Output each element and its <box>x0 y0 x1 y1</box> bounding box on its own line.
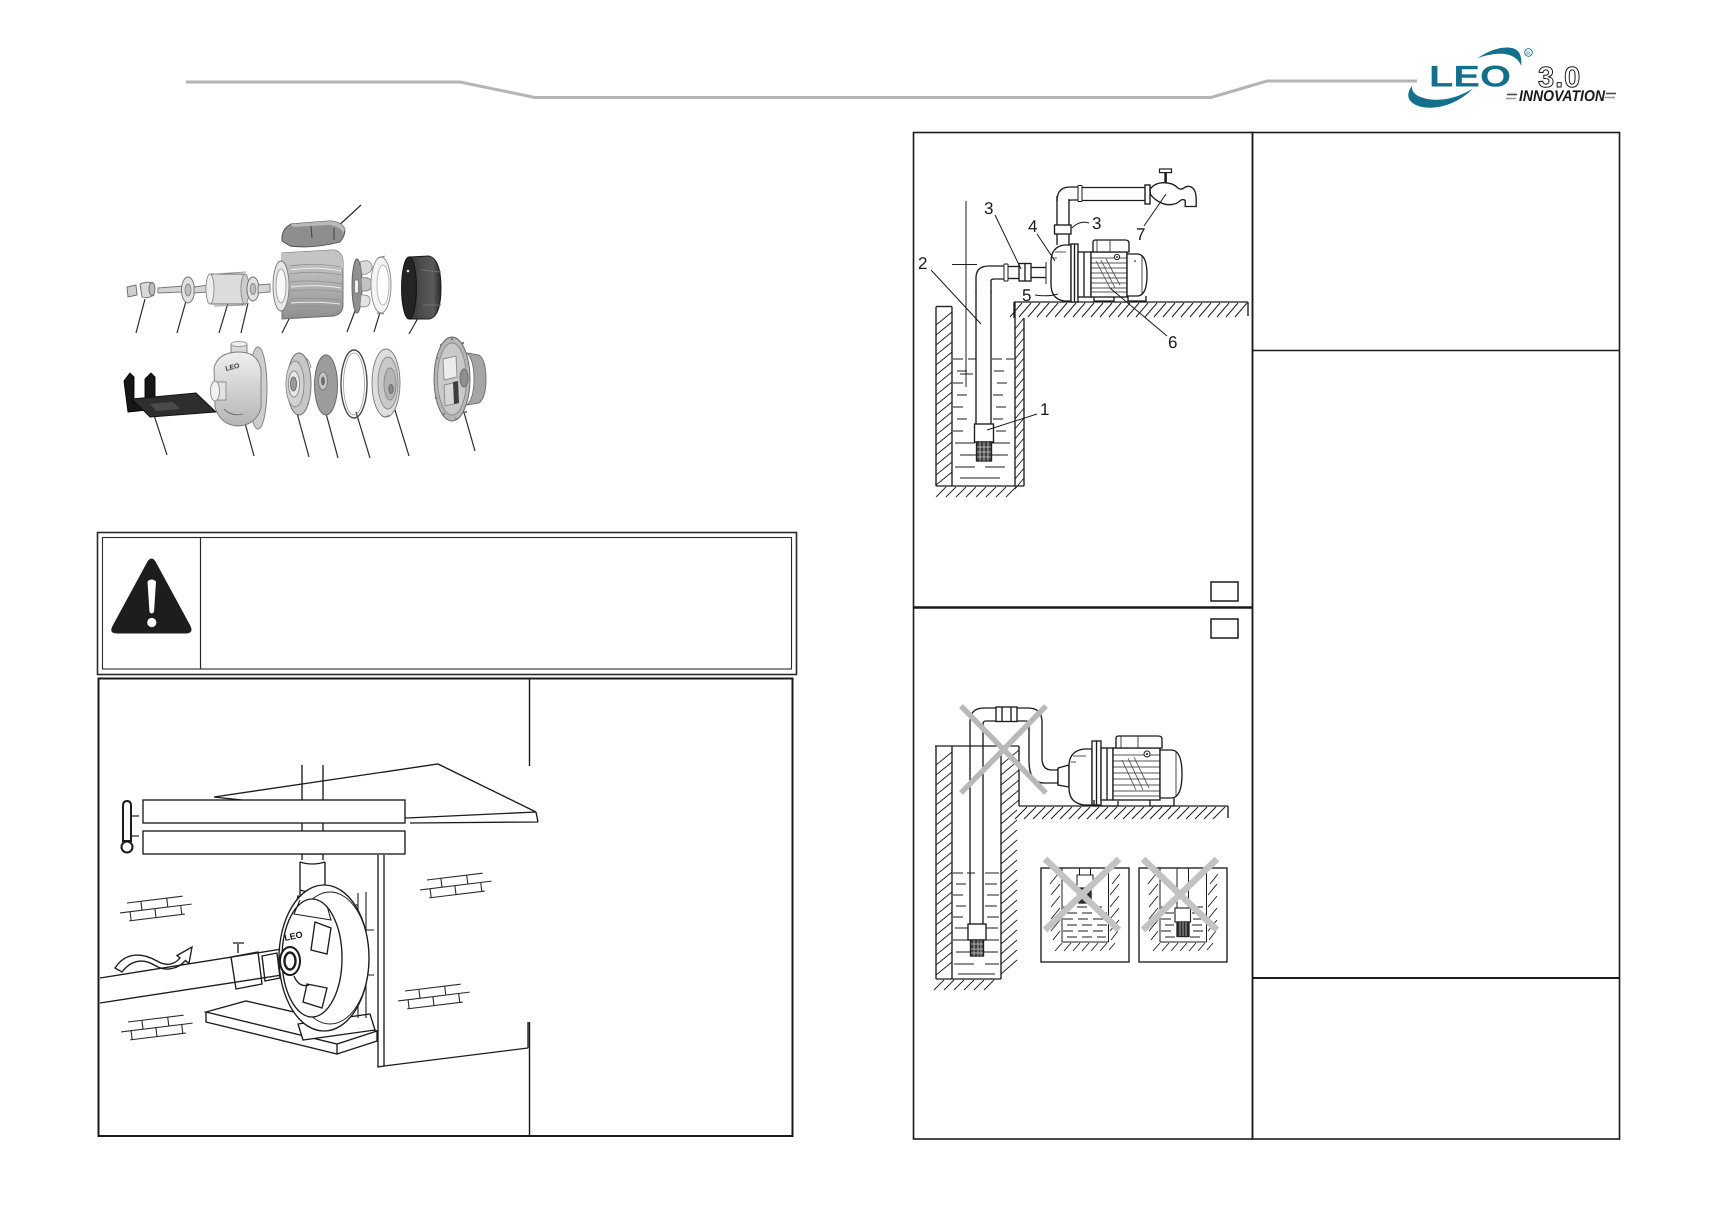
svg-text:LEO: LEO <box>1429 61 1511 94</box>
svg-text:3: 3 <box>1092 214 1101 233</box>
svg-text:R: R <box>1526 51 1530 57</box>
svg-text:1: 1 <box>1040 400 1049 419</box>
svg-text:INNOVATION: INNOVATION <box>1519 88 1606 105</box>
svg-text:6: 6 <box>1168 333 1177 352</box>
svg-text:2: 2 <box>918 254 927 273</box>
svg-text:4: 4 <box>1028 217 1037 236</box>
svg-text:7: 7 <box>1136 225 1145 244</box>
svg-text:5: 5 <box>1022 286 1031 305</box>
svg-text:3: 3 <box>984 199 993 218</box>
